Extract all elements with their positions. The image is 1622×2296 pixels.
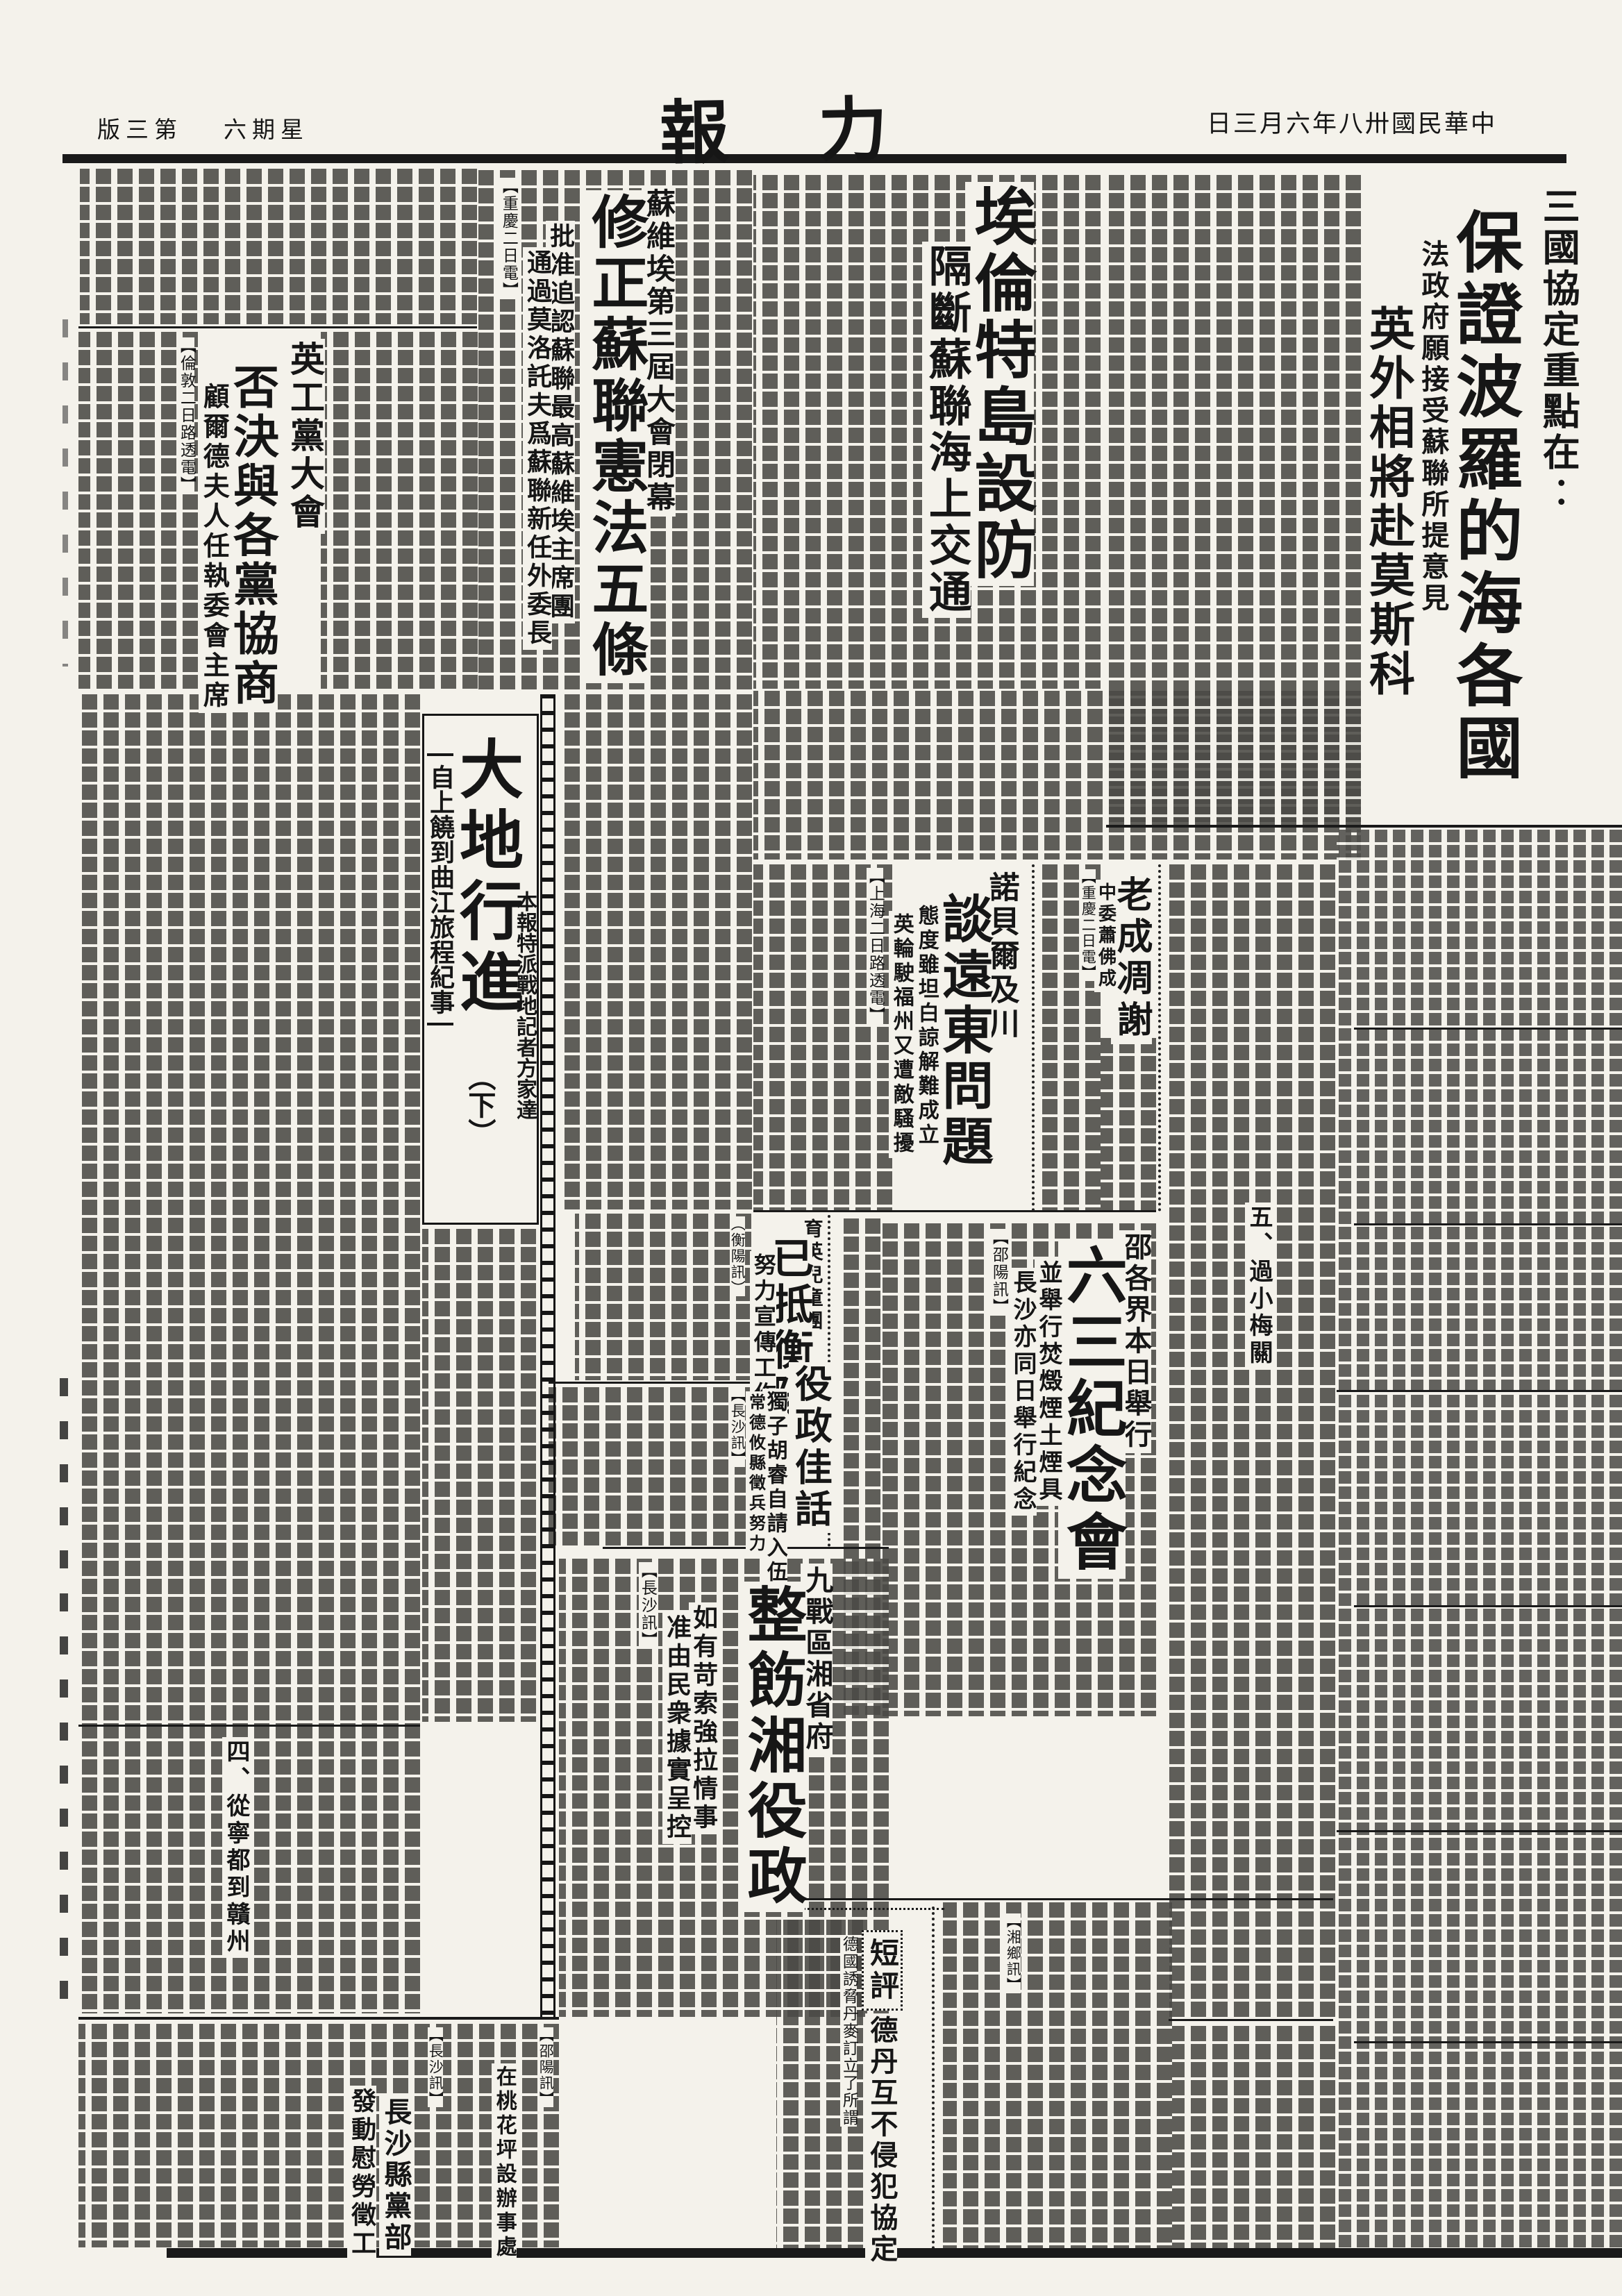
newspaper-page: 版三第 六期星 報 力 日三月六年八卅國民華中 三國協定重點在︰ 保證波羅的海各… <box>0 0 1622 2296</box>
section-rule <box>78 1725 420 1727</box>
section-rule <box>1106 825 1622 828</box>
fareast-story-subhead-1: 態度雖坦白諒解難成立 <box>914 903 939 1150</box>
editorial-lead-text: 德國誘脅丹麥訂立了所謂 <box>840 1936 857 2127</box>
party-story-dateline: 【長沙訊】 <box>428 2027 443 2107</box>
brief-rule <box>1337 1830 1622 1832</box>
memorial-story-dateline: 【邵陽訊】 <box>990 1229 1007 1316</box>
memorial-story-subhead-1: 並舉行焚燬煙土煙具 <box>1035 1258 1062 1506</box>
feature-subtitle: 自上饒到曲江旅程紀事 <box>427 753 453 1025</box>
memorial-story-subhead-2: 長沙亦同日舉行紀念 <box>1009 1268 1037 1516</box>
lead-story-subhead: 法政府願接受蘇聯所提意見 <box>1416 237 1448 617</box>
bottom-mid-body <box>1172 2026 1335 2248</box>
scan-edge-artifact <box>62 319 68 667</box>
obituary-dateline: 【重慶二日電】 <box>1080 869 1096 981</box>
hunan-story-headline: 整飭湘役政 <box>739 1582 805 1912</box>
section-rule <box>78 326 477 328</box>
labour-story-headline: 否決與各黨協商 <box>226 361 278 710</box>
hunan-story-dateline: 【長沙訊】 <box>639 1562 655 1649</box>
youth-story-headline: 在桃花坪設辦事處 <box>492 2063 517 2262</box>
feature-credit: 本報特派戰地記者方家達 <box>513 891 535 1120</box>
scan-edge-artifact <box>60 1378 68 2017</box>
soviet-story-subhead-2: 通過莫洛託夫爲蘇聯新任外委長 <box>523 247 552 650</box>
lead-story-kicker: 三國協定重點在︰ <box>1537 185 1579 517</box>
island-story-subhead: 隔斷蘇聯海上交通 <box>922 242 971 618</box>
hunan-story-subhead-1: 如有苛索強拉情事 <box>689 1602 718 1834</box>
conscription-story-headline: 役政佳話 <box>789 1362 831 1533</box>
travelogue-body-right <box>1169 864 1335 2017</box>
island-story-headline: 埃倫特島設防 <box>965 182 1034 586</box>
conscription-story-subhead-2: 常德攸縣徵兵努力 <box>746 1391 766 1557</box>
right-column-briefs <box>1337 830 1622 2247</box>
obituary-subhead: 中委蕭佛成 <box>1094 880 1117 992</box>
youth-story-dateline: 【邵陽訊】 <box>538 2027 553 2107</box>
travelogue-body-mid <box>559 694 752 1209</box>
feature-title: 大地行進 <box>451 734 521 1021</box>
feature-part-label: （下） <box>465 1063 494 1146</box>
travelogue-body-under-box <box>422 1229 536 1722</box>
memorial-story-headline: 六三紀念會 <box>1058 1241 1126 1579</box>
lead-story-deck: 英外相將赴莫斯科 <box>1362 303 1414 701</box>
conscription-story-dateline: 【長沙訊】 <box>730 1387 745 1467</box>
fareast-story-subhead-2: 英輪駛福州又遭敵騷擾 <box>889 911 914 1158</box>
travelogue-section-4: 四、從寧都到贛州 <box>222 1737 250 1958</box>
labour-story-body-right <box>321 332 478 689</box>
conscription-story-body <box>549 1387 750 1545</box>
decorative-meander-rule <box>540 694 555 2017</box>
editorial-label: 短評 <box>862 1930 903 2011</box>
misc-body-top-left <box>80 169 477 324</box>
section-rule <box>753 1210 1156 1212</box>
fareast-story-dateline: 【上海二日路透電】 <box>867 868 883 1024</box>
brief-rule <box>1354 1223 1622 1225</box>
lead-story-headline: 保證波羅的海各國 <box>1447 206 1521 787</box>
labour-story-subhead: 顧爾德夫人任執委會主席 <box>199 380 229 713</box>
fareast-story-headline: 談遠東問題 <box>935 890 992 1172</box>
decorative-wavy-rule <box>1032 864 1035 1212</box>
brief-rule <box>1354 1028 1622 1030</box>
feature-title-box: 大地行進 （下） 自上饒到曲江旅程紀事 本報特派戰地記者方家達 <box>422 714 539 1225</box>
decorative-wavy-rule <box>1158 864 1161 1212</box>
soviet-story-headline: 修正蘇聯憲法五條 <box>583 190 646 683</box>
travelogue-section-5: 五、過小梅關 <box>1245 1203 1273 1369</box>
section-rule <box>778 1898 1333 1900</box>
edition-label: 版三第 <box>97 111 183 144</box>
labour-story-kicker: 英工黨大會 <box>285 339 325 534</box>
children-story-body <box>575 1214 751 1380</box>
body-band-mid-right <box>753 691 1361 860</box>
date-label: 日三月六年八卅國民華中 <box>1207 104 1497 140</box>
brief-rule <box>1337 1390 1622 1392</box>
xiangxiang-dateline: 【湘鄉訊】 <box>1005 1913 1021 1993</box>
brief-rule <box>1354 2041 1622 2043</box>
brief-rule <box>1354 1605 1622 1607</box>
children-story-subhead: 努力宣傳工作 <box>750 1251 776 1409</box>
party-story-body <box>78 2024 559 2247</box>
obituary-headline: 老成凋謝 <box>1111 873 1152 1044</box>
party-story-subhead: 發動慰勞徵工 <box>347 2086 376 2261</box>
obituary-body-lower <box>1101 1038 1156 1212</box>
xiangxiang-body <box>943 1902 1172 2249</box>
weekday-label: 六期星 <box>224 111 309 144</box>
masthead-title: 報 力 <box>659 73 883 178</box>
children-story-dateline: （衡陽訊） <box>730 1216 745 1296</box>
section-rule <box>1169 2019 1333 2021</box>
section-rule <box>549 1382 753 1384</box>
decorative-wavy-rule <box>932 1907 935 2249</box>
editorial-headline: 德丹互不侵犯協定 <box>865 2013 897 2268</box>
soviet-story-dateline: 【重慶二日電】 <box>500 178 517 299</box>
section-rule <box>78 2017 559 2020</box>
labour-story-dateline: 【倫敦二日路透電】 <box>178 337 194 494</box>
party-story-headline: 長沙縣黨部 <box>379 2095 411 2256</box>
hunan-story-subhead-2: 准由民衆據實呈控 <box>662 1612 692 1844</box>
